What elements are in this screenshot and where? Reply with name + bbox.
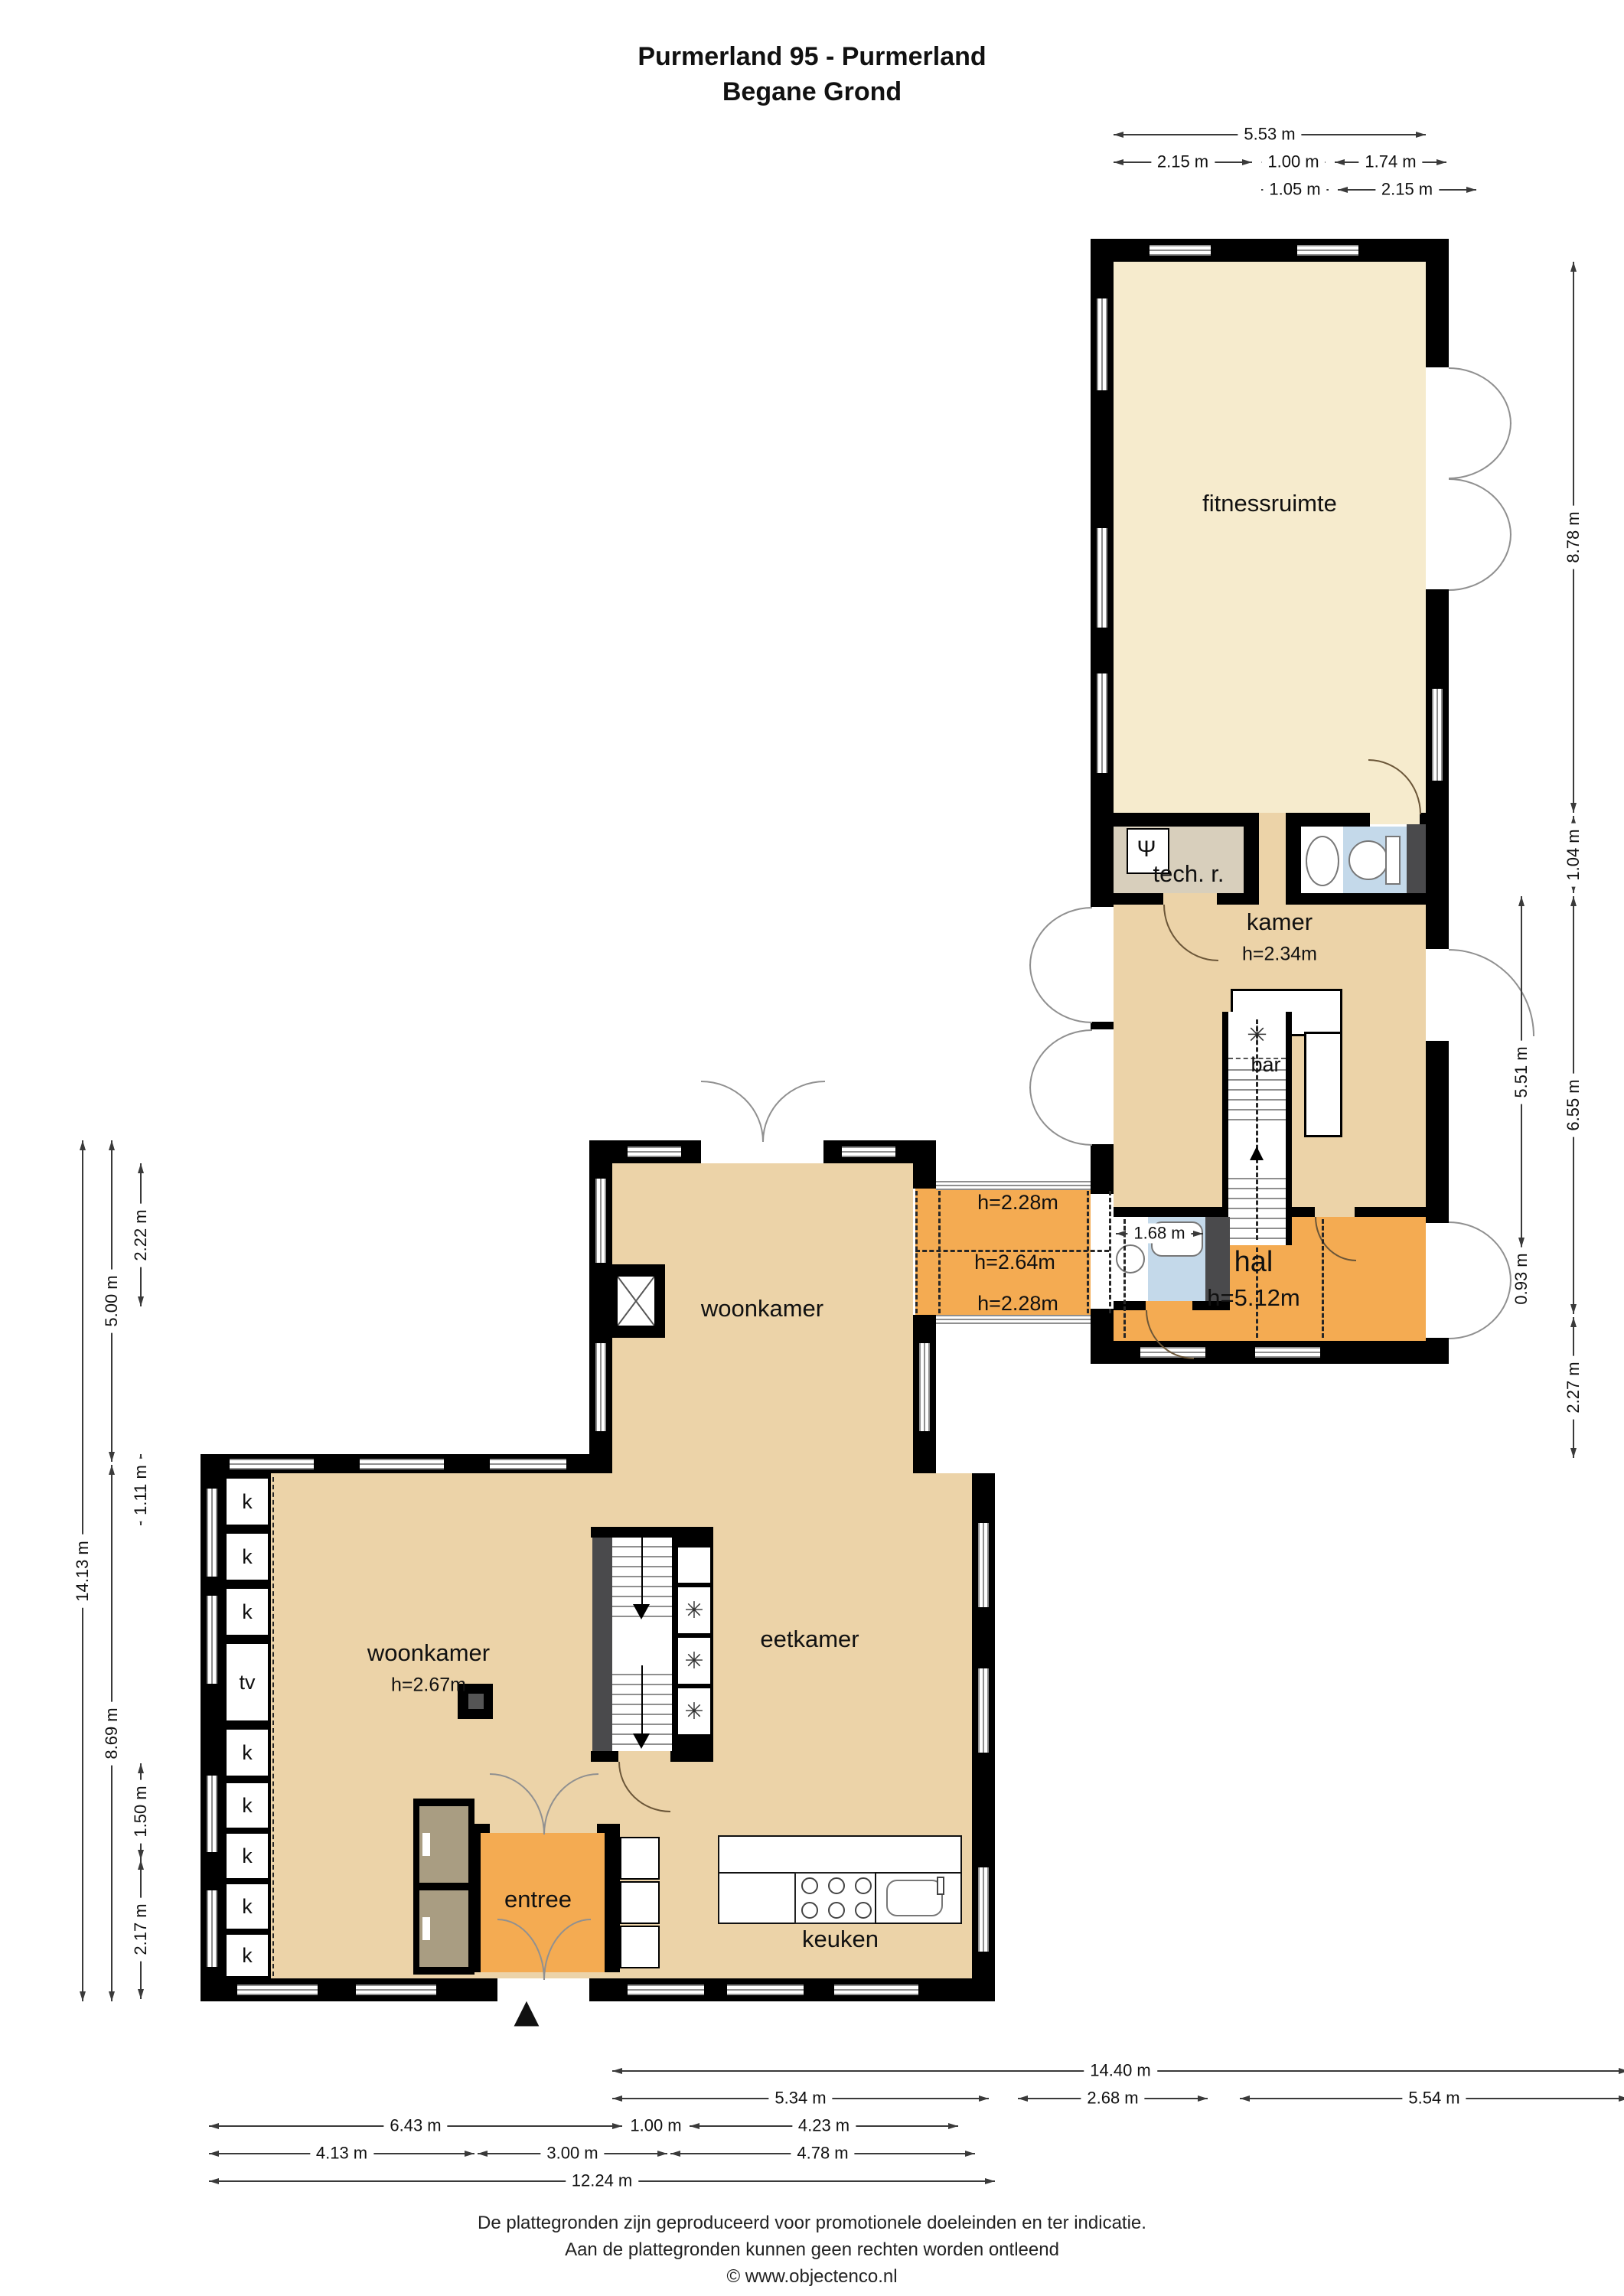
room-floor-fitnessruimte	[1114, 262, 1426, 813]
door-opening	[1426, 1223, 1449, 1338]
room-label-woonkamer-upper: woonkamer	[701, 1296, 823, 1322]
page-title: Purmerland 95 - Purmerland	[0, 40, 1624, 75]
kitchen-sink-icon	[886, 1880, 943, 1916]
wall	[1114, 893, 1163, 905]
dashed-line	[938, 1191, 941, 1313]
niche	[1407, 824, 1426, 893]
wall	[1091, 239, 1449, 262]
window	[207, 1776, 217, 1852]
wall	[591, 1751, 618, 1762]
north-arrow-icon: ▲	[505, 1987, 547, 2037]
closet-cell: k	[227, 1935, 268, 1976]
window	[207, 1596, 217, 1684]
fireplace-icon	[618, 1277, 654, 1326]
wall	[1292, 1207, 1315, 1217]
door-arc	[1449, 478, 1511, 535]
dashed-line	[1087, 1191, 1089, 1313]
boiler-icon: Ψ	[1136, 837, 1156, 863]
stairs-up-arrow-icon	[1250, 1146, 1264, 1160]
wall	[474, 1824, 481, 1972]
wall	[1293, 813, 1370, 827]
footer-line3: © www.objectenco.nl	[0, 2264, 1624, 2291]
window	[978, 1523, 989, 1607]
door-opening	[1426, 367, 1449, 589]
room-height-kamer: h=2.34m	[1242, 944, 1317, 965]
room-height-woonkamer-lower: h=2.67m	[391, 1675, 466, 1696]
window	[628, 1146, 681, 1157]
dashed-line	[1123, 1219, 1126, 1338]
wall	[1091, 813, 1259, 827]
wall	[913, 1140, 936, 1189]
hob-icon	[794, 1872, 878, 1924]
tv-cell: tv	[227, 1644, 268, 1720]
window	[356, 1985, 436, 1995]
wall	[1286, 813, 1301, 905]
door-opening	[1426, 949, 1449, 1041]
door-arc	[1449, 1221, 1511, 1281]
cupboard-cell	[620, 1837, 660, 1880]
corridor-height-top: h=2.28m	[977, 1192, 1058, 1215]
toilet-tank-icon	[1385, 836, 1401, 885]
window	[360, 1459, 444, 1469]
door-arc	[1449, 534, 1511, 591]
window	[919, 1343, 930, 1431]
door-arc	[1449, 1280, 1511, 1339]
closet-cell: k	[227, 1783, 268, 1828]
wardrobe-handle	[422, 1917, 430, 1940]
stairs-direction-line	[641, 1538, 643, 1605]
window	[237, 1985, 318, 1995]
wall	[1114, 1301, 1146, 1310]
window	[1097, 528, 1107, 628]
wardrobe-handle	[422, 1833, 430, 1856]
window	[1255, 1347, 1320, 1358]
closet-cell: k	[227, 1834, 268, 1878]
window	[207, 1489, 217, 1577]
door-arc	[1449, 422, 1511, 479]
room-label-bar: bar	[1251, 1054, 1280, 1077]
fan-icon: ✳	[677, 1687, 712, 1736]
window	[1432, 689, 1443, 781]
door-arc	[1029, 1029, 1092, 1088]
wall	[1286, 893, 1426, 905]
bar-counter-return	[1304, 1032, 1342, 1137]
door-opening	[1091, 1029, 1114, 1144]
cupboard-cell	[620, 1926, 660, 1968]
dashed-line	[272, 1477, 274, 1976]
stairs-direction-line	[641, 1665, 643, 1734]
window	[978, 1867, 989, 1952]
footer-line1: De plattegronden zijn geproduceerd voor …	[0, 2210, 1624, 2237]
kitchen-cabinet	[718, 1872, 797, 1924]
closet-cell: k	[227, 1534, 268, 1580]
pillar-core	[468, 1694, 484, 1709]
window	[936, 1315, 1091, 1324]
door-opening	[1091, 907, 1114, 1022]
window	[595, 1343, 606, 1431]
window	[1097, 298, 1107, 390]
fan-icon: ✳	[677, 1636, 712, 1685]
room-label-tech: tech. r.	[1153, 861, 1224, 887]
door-threshold	[1370, 813, 1420, 824]
closet-cell: k	[227, 1884, 268, 1929]
door-arc	[1029, 964, 1092, 1023]
window	[978, 1668, 989, 1753]
door-arc	[1449, 367, 1511, 424]
wall	[605, 1824, 620, 1972]
wall	[1091, 1309, 1114, 1364]
sink-icon	[1306, 836, 1339, 886]
room-label-fitnessruimte: fitnessruimte	[1202, 491, 1337, 517]
dashed-line	[1322, 1219, 1324, 1338]
wall	[1286, 1012, 1292, 1245]
door-arc	[1029, 1087, 1092, 1146]
wall	[670, 1751, 713, 1762]
closet-cell: k	[227, 1730, 268, 1776]
stairs-down-arrow-icon	[633, 1604, 650, 1619]
closet-cell: k	[227, 1479, 268, 1525]
window	[1150, 245, 1211, 256]
floor-plan: Purmerland 95 - Purmerland Begane Grond …	[0, 0, 1624, 2296]
door-arc	[762, 1081, 825, 1142]
door-arc	[1029, 907, 1092, 966]
footer-line2: Aan de plattegronden kunnen geen rechten…	[0, 2237, 1624, 2264]
page-subtitle: Begane Grond	[0, 75, 1624, 110]
wall	[1114, 1207, 1228, 1217]
toilet-icon	[1348, 840, 1388, 880]
corridor-height-mid: h=2.64m	[974, 1251, 1055, 1274]
footer: De plattegronden zijn geproduceerd voor …	[0, 2210, 1624, 2290]
room-height-hal: h=5.12m	[1207, 1285, 1300, 1311]
cupboard-cell	[677, 1546, 712, 1584]
door-arc	[701, 1081, 764, 1142]
window	[936, 1181, 1091, 1190]
dashed-line	[1109, 1191, 1111, 1313]
room-label-eetkamer: eetkamer	[760, 1626, 859, 1652]
wall	[1217, 893, 1259, 905]
room-label-keuken: keuken	[802, 1926, 879, 1952]
room-label-woonkamer-lower: woonkamer	[367, 1640, 490, 1666]
cupboard-cell	[620, 1881, 660, 1924]
tap-icon	[937, 1877, 944, 1895]
window	[727, 1985, 804, 1995]
window	[1097, 673, 1107, 773]
wall	[1244, 813, 1259, 905]
window	[207, 1890, 217, 1967]
window	[230, 1459, 314, 1469]
window	[834, 1985, 918, 1995]
room-label-kamer: kamer	[1247, 909, 1313, 935]
sink-icon	[1116, 1244, 1145, 1274]
room-label-hal: hal	[1234, 1247, 1273, 1279]
window	[628, 1985, 704, 1995]
window	[1297, 245, 1358, 256]
window	[595, 1179, 606, 1263]
stairs-side-panel	[592, 1538, 612, 1751]
closet-cell: k	[227, 1589, 268, 1635]
stairs-down-arrow-icon	[633, 1733, 650, 1749]
fan-icon: ✳	[677, 1586, 712, 1635]
wall	[1355, 1207, 1449, 1217]
window	[490, 1459, 566, 1469]
dashed-line	[915, 1191, 918, 1313]
kitchen-counter	[718, 1835, 962, 1875]
wall	[591, 1527, 713, 1538]
page-title-block: Purmerland 95 - Purmerland Begane Grond	[0, 40, 1624, 110]
room-label-entree: entree	[504, 1887, 572, 1913]
corridor-height-bottom: h=2.28m	[977, 1293, 1058, 1316]
window	[842, 1146, 895, 1157]
